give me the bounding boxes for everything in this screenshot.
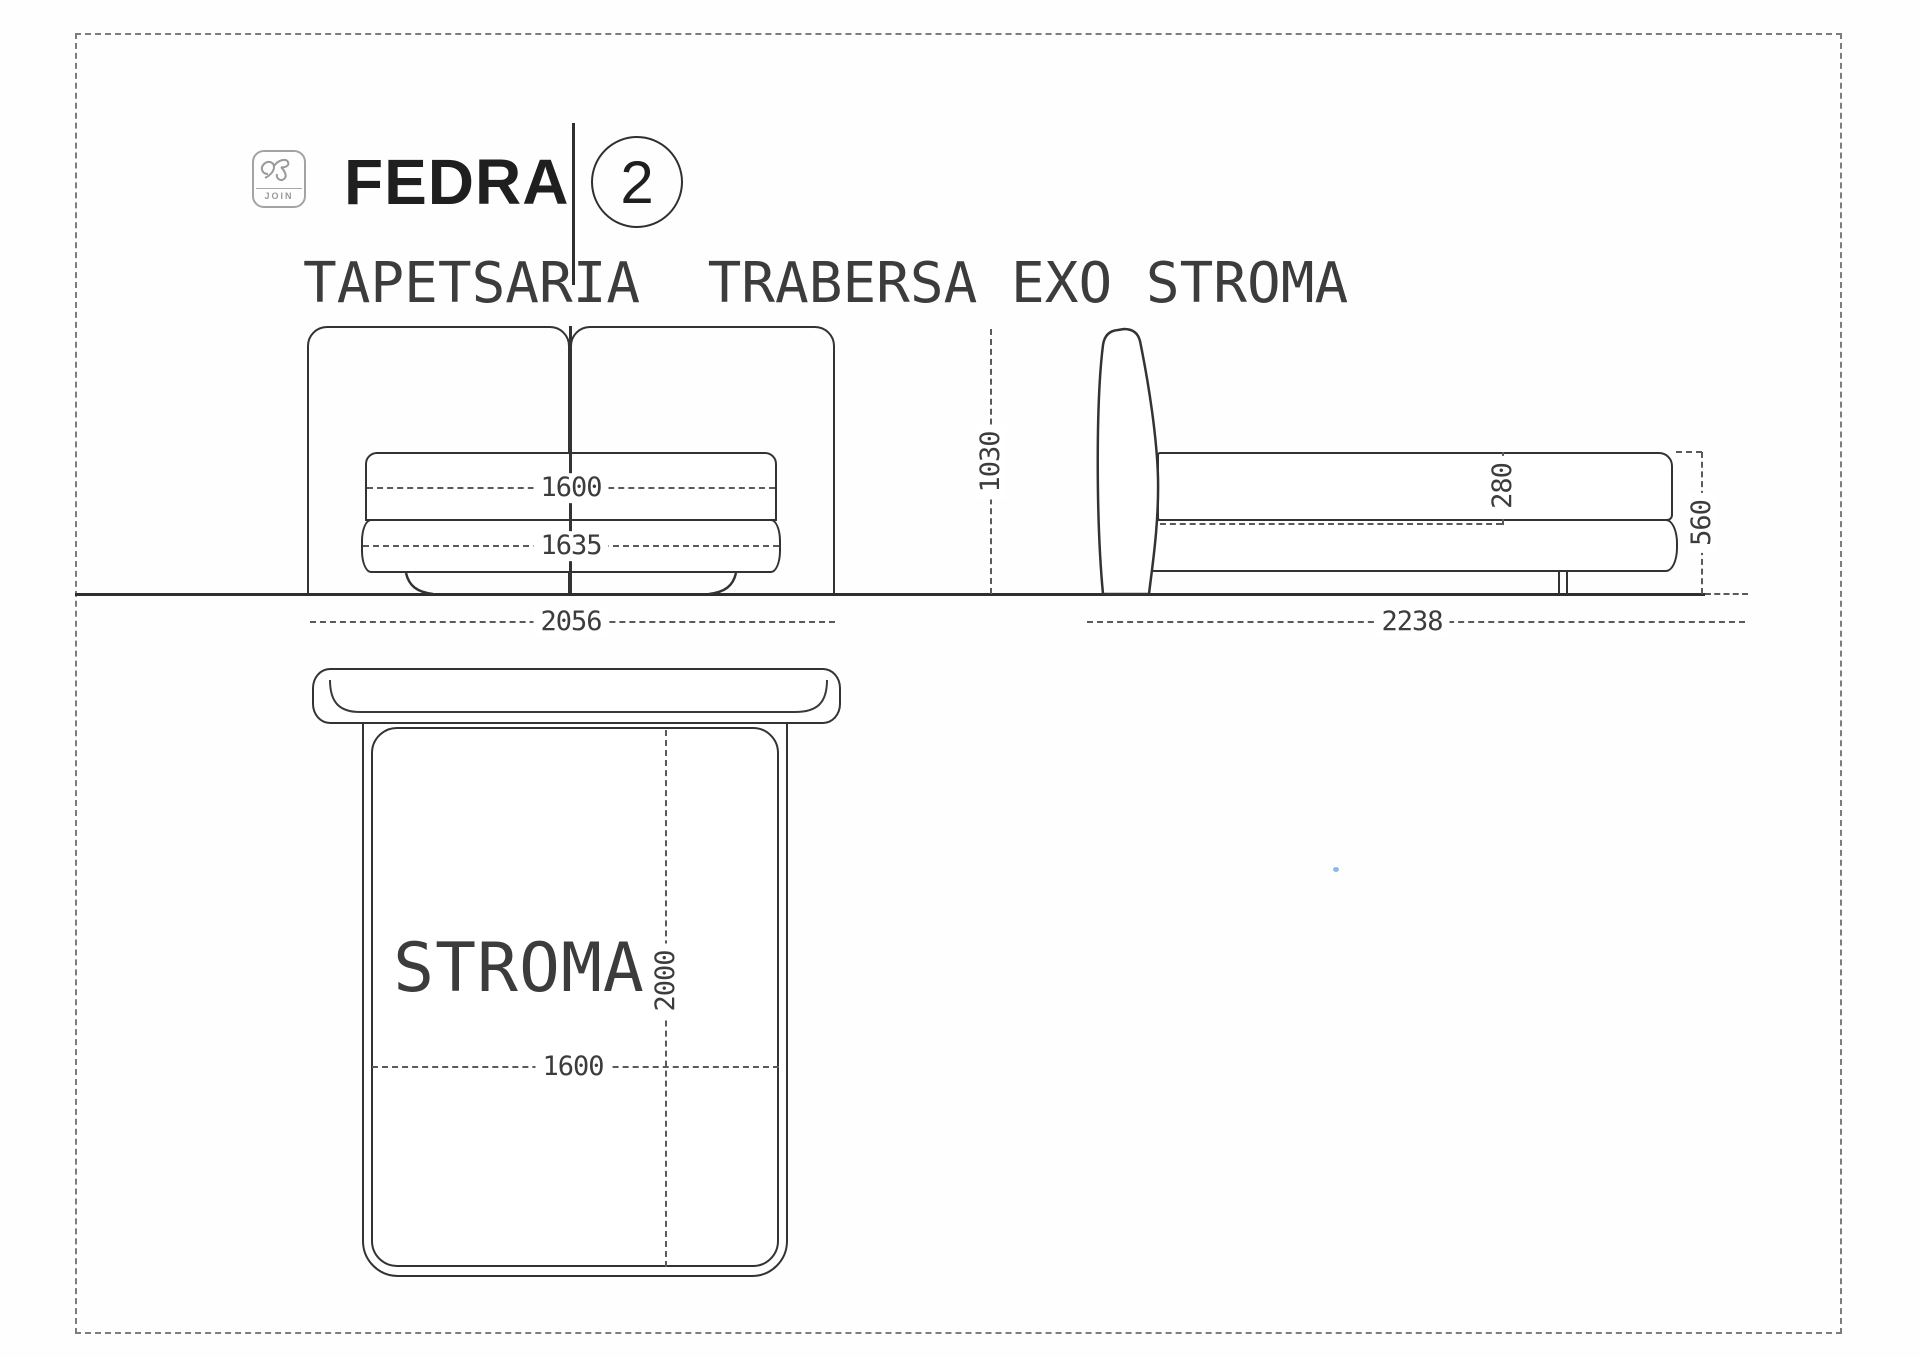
product-title: FEDRA — [344, 150, 569, 214]
join-logo-text: JOIN — [256, 188, 302, 204]
dim-top-width: 1600 — [535, 1052, 610, 1082]
side-base — [1150, 519, 1678, 572]
page-number-badge: 2 — [591, 136, 683, 228]
page-number: 2 — [620, 148, 653, 217]
scan-artifact-dot — [1333, 867, 1339, 872]
dim-mattress-thickness: 280 — [1488, 456, 1518, 516]
dim-top-length: 2000 — [651, 943, 681, 1018]
dim-mattress-thickness-ref — [1160, 523, 1502, 525]
dim-side-overall-length: 2238 — [1374, 607, 1449, 637]
stroma-label: STROMA — [393, 935, 645, 1003]
dim-side-height: 1030 — [976, 424, 1006, 499]
blueprint-page: JOIN FEDRA 2 TAPETSARIA TRABERSA EXO STR… — [0, 0, 1920, 1358]
ground-line — [75, 593, 1705, 596]
join-logo-icon: JOIN — [252, 150, 306, 208]
dim-bed-height-tick — [1676, 451, 1702, 453]
join-logo-mark — [254, 152, 304, 190]
dim-front-mattress-width: 1600 — [533, 473, 608, 503]
dim-front-base-width: 1635 — [533, 531, 608, 561]
subtitle: TAPETSARIA TRABERSA EXO STROMA — [303, 256, 1348, 312]
top-headboard-bar — [312, 668, 841, 724]
dim-front-overall-width: 2056 — [533, 607, 608, 637]
ground-line-extension — [1705, 593, 1748, 595]
side-leg — [1558, 571, 1568, 594]
dim-bed-height: 560 — [1687, 493, 1717, 553]
side-mattress — [1157, 452, 1673, 521]
